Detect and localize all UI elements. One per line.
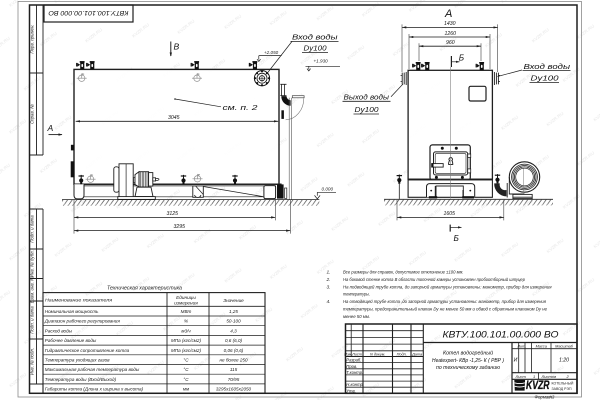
- svg-text:°С: °С: [183, 377, 189, 382]
- svg-text:Вход воды: Вход воды: [292, 34, 339, 42]
- svg-text:+2.050: +2.050: [264, 50, 279, 55]
- svg-text:0,6 (6,0): 0,6 (6,0): [225, 338, 243, 343]
- svg-text:ЗАВОД РЭП: ЗАВОД РЭП: [552, 387, 573, 391]
- svg-text:На боковой стенке котла В обла: На боковой стенке котла В области топочн…: [343, 276, 525, 283]
- svg-text:Подп. и дата: Подп. и дата: [30, 215, 35, 243]
- svg-text:Максимальная рабочая температу: Максимальная рабочая температура воды: [45, 367, 140, 372]
- svg-text:Б: Б: [454, 234, 460, 243]
- svg-text:%: %: [184, 319, 188, 324]
- svg-text:1430: 1430: [444, 21, 456, 27]
- svg-text:Пров.: Пров.: [346, 364, 357, 369]
- svg-text:Номинальная мощность: Номинальная мощность: [45, 309, 99, 314]
- svg-text:температуры, предохранительный: температуры, предохранительный клапан Dу…: [343, 306, 547, 313]
- svg-text:Перв. примен.: Перв. примен.: [30, 24, 35, 53]
- svg-text:менее 50 мм.: менее 50 мм.: [343, 314, 370, 320]
- svg-text:Температура уходящих газов: Температура уходящих газов: [45, 358, 110, 363]
- svg-text:1605: 1605: [444, 211, 456, 217]
- svg-text:КВТУ.100.101.00.000 ВО: КВТУ.100.101.00.000 ВО: [443, 330, 560, 341]
- svg-text:Взам. инв. №: Взам. инв. №: [30, 276, 35, 303]
- svg-text:Разраб.: Разраб.: [346, 358, 361, 363]
- svg-text:МПа (кгс/см2): МПа (кгс/см2): [171, 348, 201, 353]
- svg-text:Б: Б: [459, 53, 465, 62]
- svg-text:1260: 1260: [445, 31, 457, 37]
- svg-text:МПа (кгс/см2): МПа (кгс/см2): [171, 338, 201, 343]
- svg-text:Котел водогрейный: Котел водогрейный: [443, 350, 493, 357]
- svg-text:3125: 3125: [167, 211, 179, 217]
- svg-text:Инв. № подл.: Инв. № подл.: [30, 348, 35, 375]
- svg-text:см. п. 2: см. п. 2: [223, 103, 259, 112]
- svg-text:не более 250: не более 250: [219, 358, 247, 363]
- svg-text:70/95: 70/95: [228, 377, 240, 382]
- svg-text:МВт: МВт: [181, 309, 192, 314]
- svg-text:50-100: 50-100: [226, 319, 241, 324]
- svg-text:измерения: измерения: [174, 301, 198, 306]
- svg-text:3045: 3045: [168, 115, 180, 121]
- svg-text:1:20: 1:20: [559, 358, 569, 364]
- svg-text:Техническая характеристика: Техническая характеристика: [107, 285, 182, 291]
- svg-text:0,06 (0,6): 0,06 (0,6): [224, 348, 244, 353]
- svg-text:1,25: 1,25: [229, 309, 238, 314]
- svg-text:960: 960: [446, 40, 455, 46]
- svg-text:Наименование показателя: Наименование показателя: [45, 298, 113, 303]
- svg-text:КОТЕЛЬНЫЙ: КОТЕЛЬНЫЙ: [552, 382, 574, 386]
- svg-text:Т.контр.: Т.контр.: [346, 370, 363, 375]
- svg-text:4.: 4.: [327, 299, 331, 305]
- svg-text:температуры.: температуры.: [343, 293, 370, 298]
- svg-text:На подводящей трубе котла, д: На подводящей трубе котла, до запорной а…: [343, 284, 552, 291]
- svg-text:Heatexpert- КВр -1,25- К ( РВР: Heatexpert- КВр -1,25- К ( РВР ): [432, 358, 504, 364]
- svg-text:Лит.: Лит.: [516, 344, 526, 348]
- svg-text:2.: 2.: [326, 277, 331, 283]
- svg-text:Dy100: Dy100: [304, 46, 327, 53]
- svg-text:Габариты котла (Длина х ширина: Габариты котла (Длина х ширина х высота): [45, 387, 144, 392]
- svg-text:Подп. и дата: Подп. и дата: [30, 306, 35, 334]
- svg-text:КВТУ.100.101.00.000 ВО: КВТУ.100.101.00.000 ВО: [49, 9, 129, 16]
- svg-text:3295: 3295: [174, 224, 186, 230]
- svg-text:Гидравлическое сопротивление к: Гидравлическое сопротивление котла: [45, 348, 130, 353]
- svg-text:В: В: [174, 42, 180, 52]
- svg-text:мм: мм: [183, 387, 190, 392]
- svg-text:115: 115: [230, 367, 238, 372]
- svg-text:Dy100: Dy100: [355, 107, 379, 114]
- svg-text:1.: 1.: [327, 270, 331, 276]
- svg-text:Инв. № дубл.: Инв. № дубл.: [30, 250, 35, 277]
- svg-text:3.: 3.: [327, 285, 331, 291]
- svg-text:Справ. №: Справ. №: [30, 104, 35, 124]
- svg-text:KVZR: KVZR: [526, 378, 550, 392]
- svg-text:по техническому заданию: по техническому заданию: [436, 365, 500, 371]
- svg-text:Лист: Лист: [351, 352, 362, 356]
- svg-text:А: А: [444, 8, 452, 20]
- svg-text:Dy100: Dy100: [531, 74, 560, 83]
- svg-text:4,3: 4,3: [230, 328, 237, 333]
- svg-text:А3: А3: [548, 395, 555, 400]
- svg-text:3295х1605х2050: 3295х1605х2050: [216, 387, 252, 392]
- svg-text:N докум.: N докум.: [370, 352, 385, 356]
- svg-text:0.000: 0.000: [322, 186, 334, 191]
- svg-text:Утв.: Утв.: [346, 388, 356, 393]
- svg-text:°С: °С: [183, 367, 189, 372]
- svg-text:Значение: Значение: [223, 298, 244, 303]
- svg-text:м3/ч: м3/ч: [181, 328, 191, 333]
- svg-text:Температура воды (Вход/Выход): Температура воды (Вход/Выход): [45, 377, 117, 382]
- svg-text:Вход воды: Вход воды: [524, 63, 572, 71]
- svg-text:Расход воды: Расход воды: [45, 328, 73, 333]
- svg-text:°С: °С: [183, 358, 189, 363]
- svg-text:Масса: Масса: [536, 344, 547, 348]
- svg-text:Н.контр.: Н.контр.: [346, 382, 364, 387]
- svg-text:Все размеры для справок, допус: Все размеры для справок, допустимое откл…: [343, 270, 464, 276]
- svg-text:А: А: [47, 123, 54, 133]
- svg-text:Дата: Дата: [411, 352, 422, 356]
- svg-text:Выход воды: Выход воды: [344, 94, 390, 102]
- svg-text:Лист: Лист: [515, 374, 527, 379]
- svg-text:На отводящей трубе котла ,до з: На отводящей трубе котла ,до запорной ар…: [343, 298, 546, 305]
- svg-text:Рабочее давление воды: Рабочее давление воды: [45, 338, 97, 343]
- svg-text:Подп.: Подп.: [397, 352, 407, 356]
- svg-text:Масштаб: Масштаб: [555, 344, 574, 348]
- svg-text:Единицы: Единицы: [176, 295, 196, 300]
- svg-text:+1.930: +1.930: [314, 58, 329, 63]
- svg-text:Диапазон рабочего регулировани: Диапазон рабочего регулирования: [44, 319, 121, 324]
- svg-text:И: И: [514, 358, 518, 364]
